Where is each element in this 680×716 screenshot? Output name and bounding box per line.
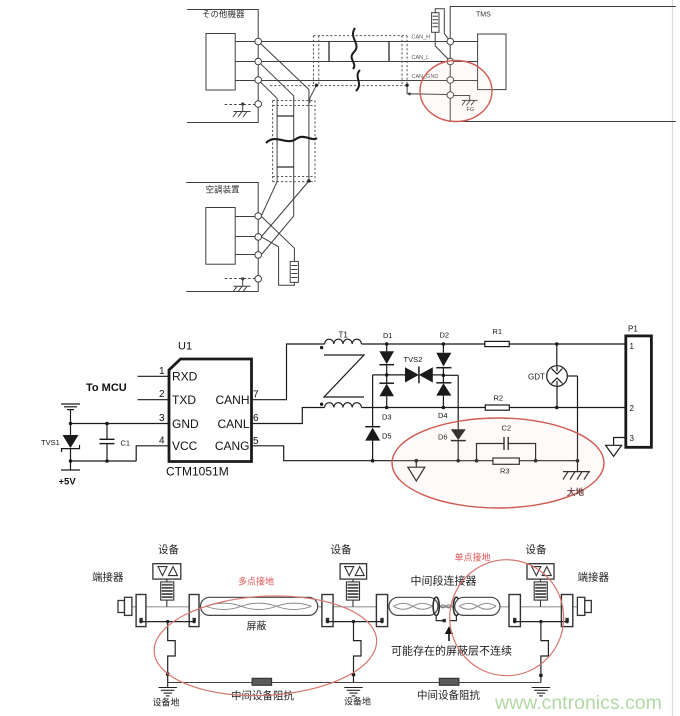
svg-text:D4: D4	[438, 411, 448, 420]
svg-text:T1: T1	[339, 331, 349, 340]
svg-text:R1: R1	[493, 327, 503, 336]
svg-text:TVS2: TVS2	[404, 355, 423, 364]
svg-text:P1: P1	[628, 325, 638, 334]
svg-text:3: 3	[630, 434, 635, 443]
svg-text:2: 2	[630, 404, 635, 413]
svg-text:D1: D1	[383, 331, 393, 340]
svg-text:设备地: 设备地	[153, 697, 180, 708]
svg-text:设备: 设备	[331, 543, 352, 556]
svg-text:5: 5	[253, 436, 259, 447]
svg-text:www.cntronics.com: www.cntronics.com	[494, 692, 662, 714]
svg-text:可能存在的屏蔽层不连续: 可能存在的屏蔽层不连续	[391, 644, 512, 658]
svg-text:设备: 设备	[158, 543, 179, 556]
svg-text:CAN_H: CAN_H	[412, 35, 431, 41]
svg-text:TMS: TMS	[476, 12, 491, 19]
svg-text:6: 6	[253, 413, 259, 424]
svg-text:C1: C1	[121, 439, 131, 448]
svg-text:设备: 设备	[526, 543, 547, 556]
svg-text:その他機器: その他機器	[202, 9, 245, 19]
svg-text:RXD: RXD	[172, 370, 198, 384]
svg-text:端接器: 端接器	[578, 571, 610, 584]
svg-text:CANG: CANG	[215, 439, 250, 453]
svg-text:中间段连接器: 中间段连接器	[411, 574, 477, 588]
svg-text:To MCU: To MCU	[86, 382, 127, 394]
svg-text:CTM1051M: CTM1051M	[166, 465, 229, 479]
svg-text:2: 2	[159, 389, 165, 400]
svg-text:GND: GND	[172, 417, 199, 431]
svg-text:屏蔽: 屏蔽	[247, 621, 267, 633]
svg-text:GDT: GDT	[528, 373, 545, 382]
svg-text:D5: D5	[382, 432, 392, 441]
svg-text:D2: D2	[440, 331, 450, 340]
svg-text:D3: D3	[382, 413, 392, 422]
svg-text:+5V: +5V	[59, 477, 77, 488]
svg-text:多点接地: 多点接地	[238, 576, 274, 587]
svg-text:4: 4	[159, 436, 165, 447]
svg-text:单点接地: 单点接地	[455, 552, 491, 563]
svg-text:CANH: CANH	[215, 393, 249, 407]
svg-text:VCC: VCC	[172, 439, 198, 453]
svg-text:大地: 大地	[567, 487, 585, 497]
svg-text:TVS1: TVS1	[41, 438, 60, 447]
svg-text:空調装置: 空調装置	[206, 185, 241, 195]
svg-text:1: 1	[630, 342, 635, 351]
svg-text:U1: U1	[178, 341, 192, 353]
svg-text:中间设备阻抗: 中间设备阻抗	[417, 689, 480, 702]
svg-text:CAN_L: CAN_L	[412, 55, 430, 61]
svg-text:R2: R2	[494, 394, 504, 403]
svg-text:端接器: 端接器	[92, 571, 124, 584]
svg-text:CANL: CANL	[217, 417, 249, 431]
svg-text:TXD: TXD	[172, 393, 196, 407]
svg-text:3: 3	[159, 413, 165, 424]
svg-text:7: 7	[253, 390, 259, 401]
svg-text:1: 1	[159, 366, 165, 377]
svg-text:设备地: 设备地	[344, 696, 371, 707]
